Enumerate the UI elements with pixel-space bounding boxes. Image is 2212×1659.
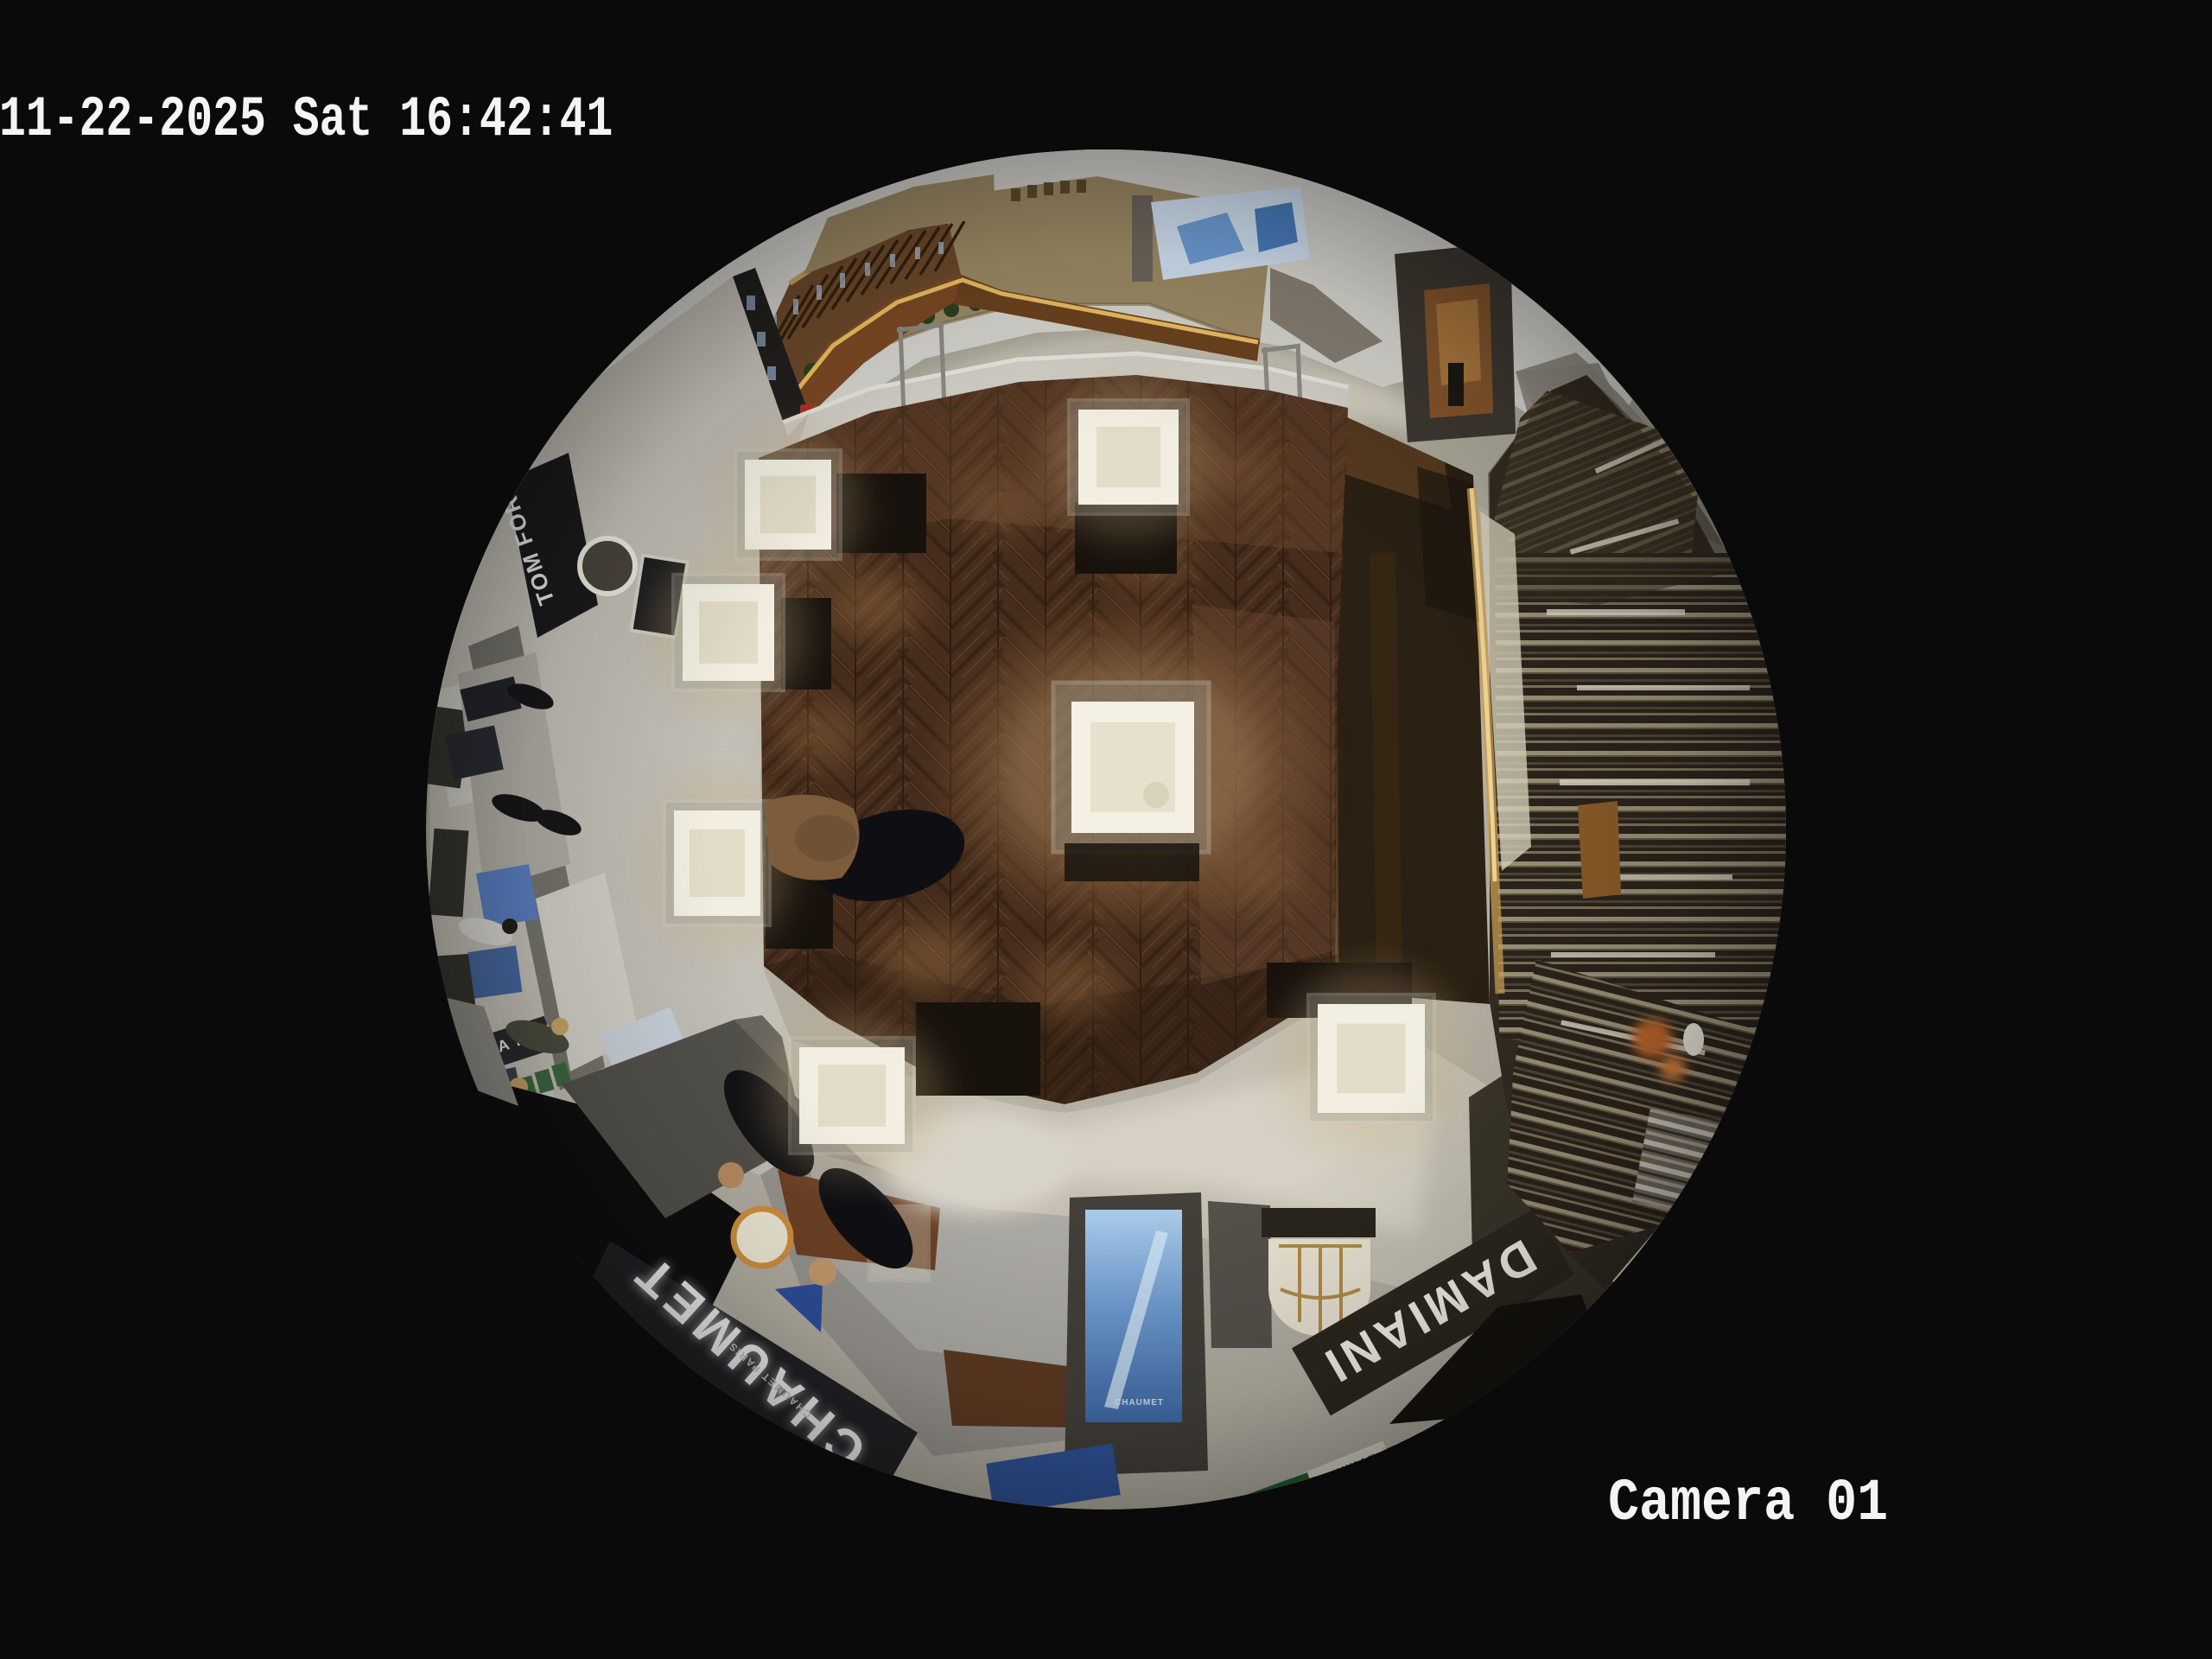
svg-text:Camera 01: Camera 01: [1608, 1470, 1888, 1537]
svg-text:11-22-2025 Sat 16:42:41: 11-22-2025 Sat 16:42:41: [0, 87, 613, 152]
